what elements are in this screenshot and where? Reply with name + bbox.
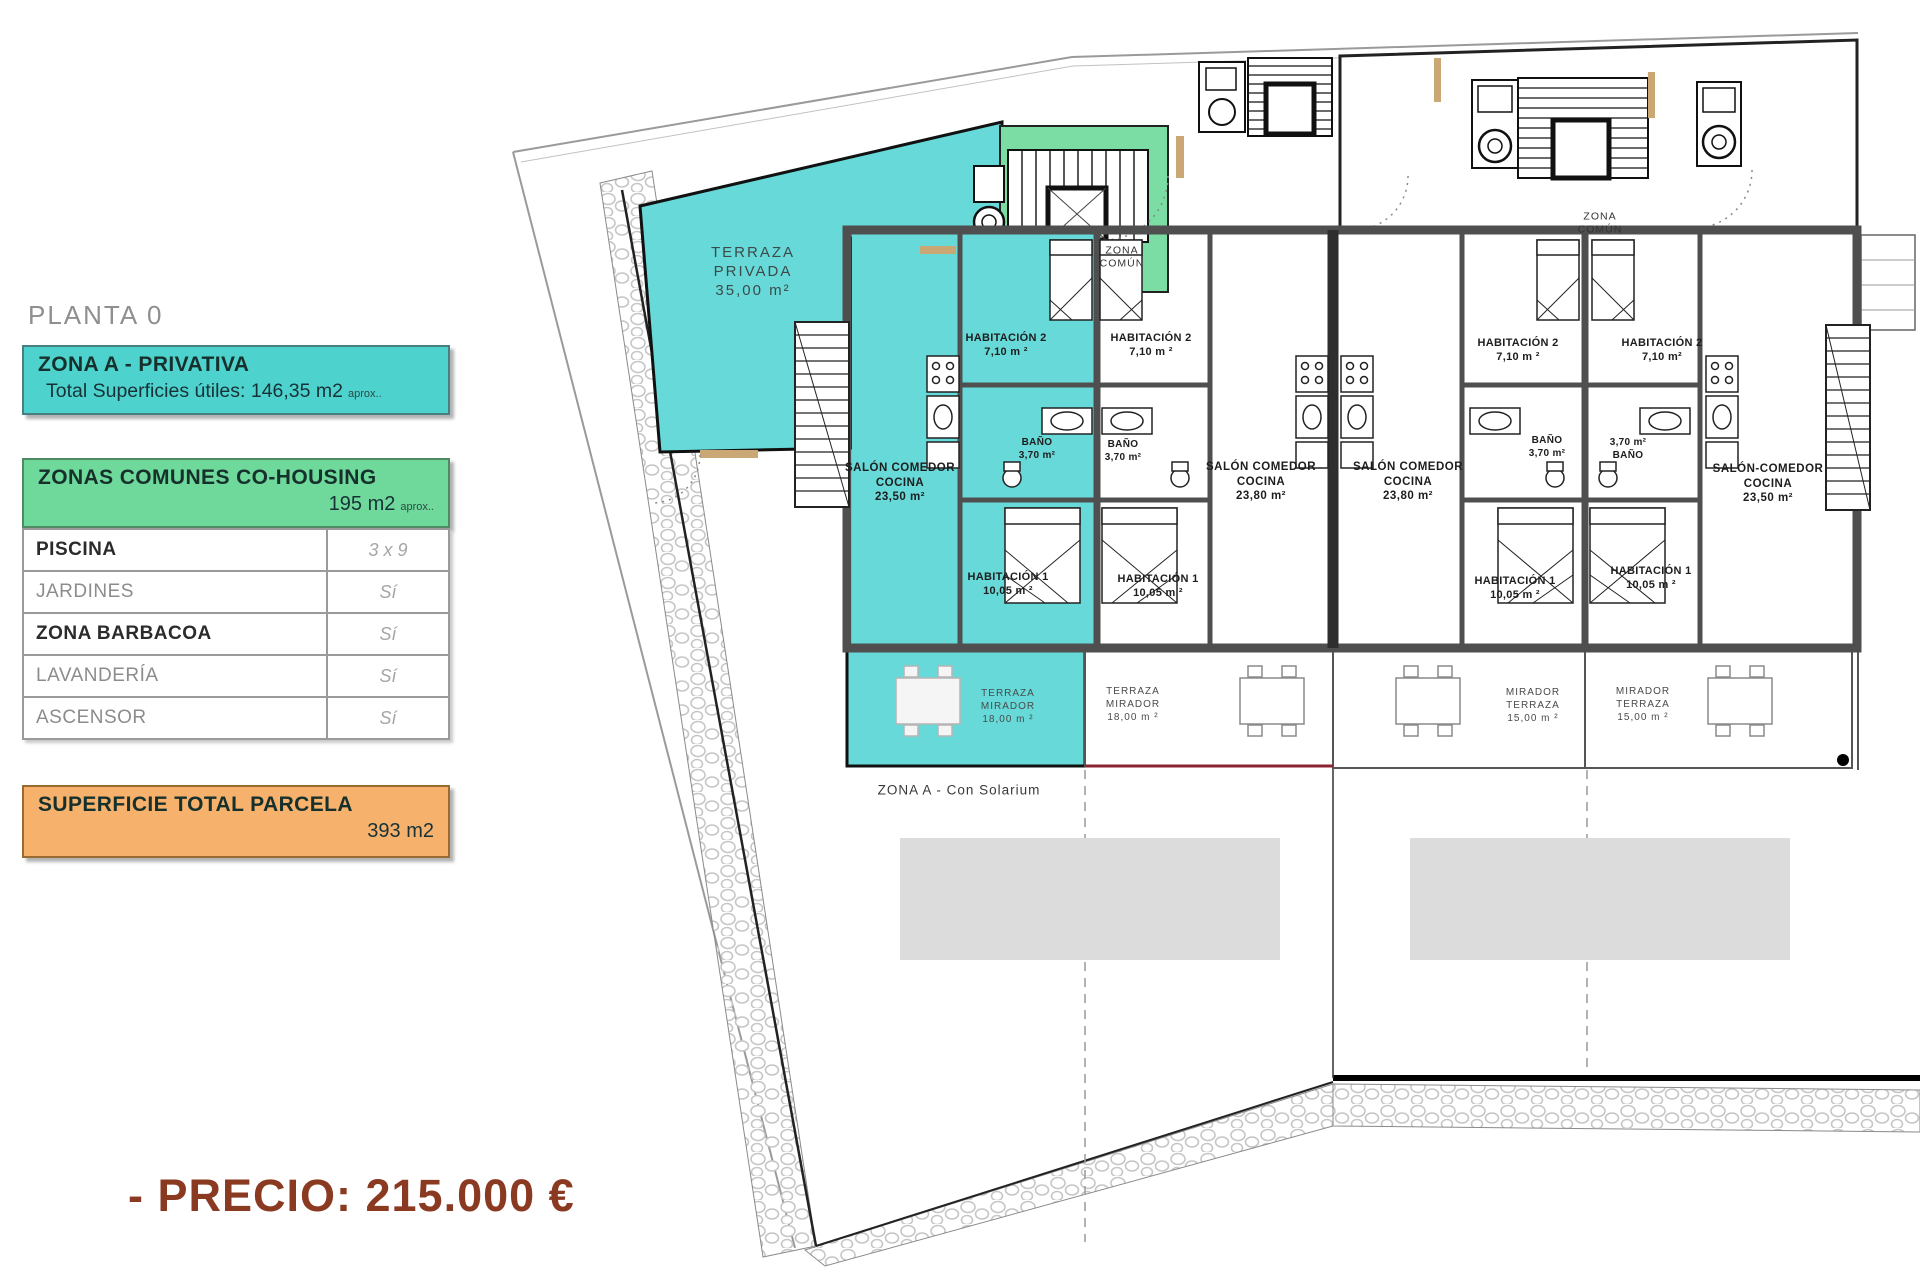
price-line: - PRECIO: 215.000 €: [128, 1170, 575, 1222]
zonas-comunes-box: ZONAS COMUNES CO-HOUSING 195 m2aprox..: [22, 458, 450, 528]
bed-icon: [1592, 240, 1634, 320]
stove-icon: [1706, 356, 1738, 468]
amenity-row: ZONA BARBACOASí: [24, 614, 448, 656]
stove-icon: [927, 356, 959, 468]
sink-icon: [1640, 408, 1690, 434]
room-label: BAÑO 3,70 m²: [1019, 437, 1056, 463]
stove-icon: [1296, 356, 1328, 468]
amenities-table: PISCINA3 x 9JARDINESSíZONA BARBACOASíLAV…: [22, 528, 450, 740]
floor-title: PLANTA 0: [28, 300, 163, 331]
zonas-comunes-area: 195 m2aprox..: [38, 493, 438, 516]
amenity-value: Sí: [326, 572, 448, 612]
amenity-value: 3 x 9: [326, 530, 448, 570]
room-label: MIRADOR TERRAZA 15,00 m ²: [1616, 686, 1670, 724]
garden-pads: [900, 838, 1790, 960]
room-label: ZONA A - Con Solarium: [878, 781, 1041, 798]
amenity-row: PISCINA3 x 9: [24, 530, 448, 572]
amenity-value: Sí: [326, 656, 448, 696]
toilet-icon: [1171, 462, 1189, 487]
zona-comun-right-area: [1340, 40, 1857, 230]
toilet-icon: [1599, 462, 1617, 487]
approx-note: aprox..: [400, 501, 434, 513]
room-label: HABITACIÓN 1 10,05 m ²: [1610, 564, 1691, 592]
amenity-value: Sí: [326, 614, 448, 654]
amenity-label: LAVANDERÍA: [24, 665, 326, 687]
room-label: TERRAZA MIRADOR 18,00 m ²: [981, 688, 1035, 726]
plan-marker-dot: [1837, 754, 1849, 766]
room-label: 3,70 m² BAÑO: [1610, 437, 1647, 463]
room-label: SALÓN COMEDOR COCINA 23,80 m²: [1353, 460, 1463, 504]
room-label: HABITACIÓN 2 7,10 m ²: [1477, 336, 1558, 364]
amenity-label: ASCENSOR: [24, 707, 326, 729]
room-label: TERRAZA MIRADOR 18,00 m ²: [1106, 686, 1160, 724]
approx-note: aprox..: [348, 388, 382, 400]
washing-machine-icon: [1703, 126, 1735, 158]
zona-a-box: ZONA A - PRIVATIVA Total Superficies úti…: [22, 345, 450, 415]
amenity-row: LAVANDERÍASí: [24, 656, 448, 698]
terraza-mirador-a: [847, 650, 1085, 766]
slide: PLANTA 0 ZONA A - PRIVATIVA Total Superf…: [0, 0, 1920, 1280]
superficie-total-title: SUPERFICIE TOTAL PARCELA: [38, 793, 438, 817]
elevator-icon: [1553, 120, 1609, 178]
amenity-label: ZONA BARBACOA: [24, 623, 326, 645]
room-label: TERRAZA PRIVADA 35,00 m²: [711, 243, 795, 301]
room-label: MIRADOR TERRAZA 15,00 m ²: [1506, 687, 1560, 725]
washing-machine-icon: [1479, 130, 1511, 162]
room-label: ZONA COMÚN: [1578, 211, 1623, 238]
zonas-comunes-title: ZONAS COMUNES CO-HOUSING: [38, 466, 438, 490]
room-label: BAÑO 3,70 m²: [1105, 439, 1142, 465]
room-label: ZONA COMÚN: [1100, 245, 1145, 272]
zona-a-title: ZONA A - PRIVATIVA: [38, 353, 438, 377]
bed-icon: [1050, 240, 1092, 320]
superficie-total-area: 393 m2: [38, 820, 438, 843]
room-label: SALÓN COMEDOR COCINA 23,80 m²: [1206, 460, 1316, 504]
amenity-row: JARDINESSí: [24, 572, 448, 614]
solarium-pad: [1410, 838, 1790, 960]
toilet-icon: [1546, 462, 1564, 487]
room-label: HABITACIÓN 1 10,05 m ²: [1474, 574, 1555, 602]
amenity-value: Sí: [326, 698, 448, 738]
room-label: HABITACIÓN 2 7,10 m ²: [965, 331, 1046, 359]
room-label: SALÓN-COMEDOR COCINA 23,50 m²: [1713, 462, 1824, 506]
room-label: BAÑO 3,70 m²: [1529, 435, 1566, 461]
amenity-label: JARDINES: [24, 581, 326, 603]
sink-icon: [1470, 408, 1520, 434]
zona-a-total: Total Superficies útiles: 146,35 m2aprox…: [38, 380, 438, 403]
room-label: SALÓN COMEDOR COCINA 23,50 m²: [845, 461, 955, 505]
room-label: HABITACIÓN 2 7,10 m²: [1621, 336, 1702, 364]
sink-icon: [1102, 408, 1152, 434]
toilet-icon: [1003, 462, 1021, 487]
superficie-total-box: SUPERFICIE TOTAL PARCELA 393 m2: [22, 785, 450, 858]
stove-icon: [1341, 356, 1373, 468]
room-label: HABITACIÓN 1 10,05 m ²: [967, 570, 1048, 598]
solarium-pad: [900, 838, 1280, 960]
amenity-row: ASCENSORSí: [24, 698, 448, 738]
room-label: HABITACIÓN 2 7,10 m ²: [1110, 331, 1191, 359]
room-label: HABITACIÓN 1 10,05 m ²: [1117, 572, 1198, 600]
amenity-label: PISCINA: [24, 539, 326, 561]
bed-icon: [1537, 240, 1579, 320]
sink-icon: [1042, 408, 1092, 434]
elevator-icon: [1266, 84, 1314, 134]
